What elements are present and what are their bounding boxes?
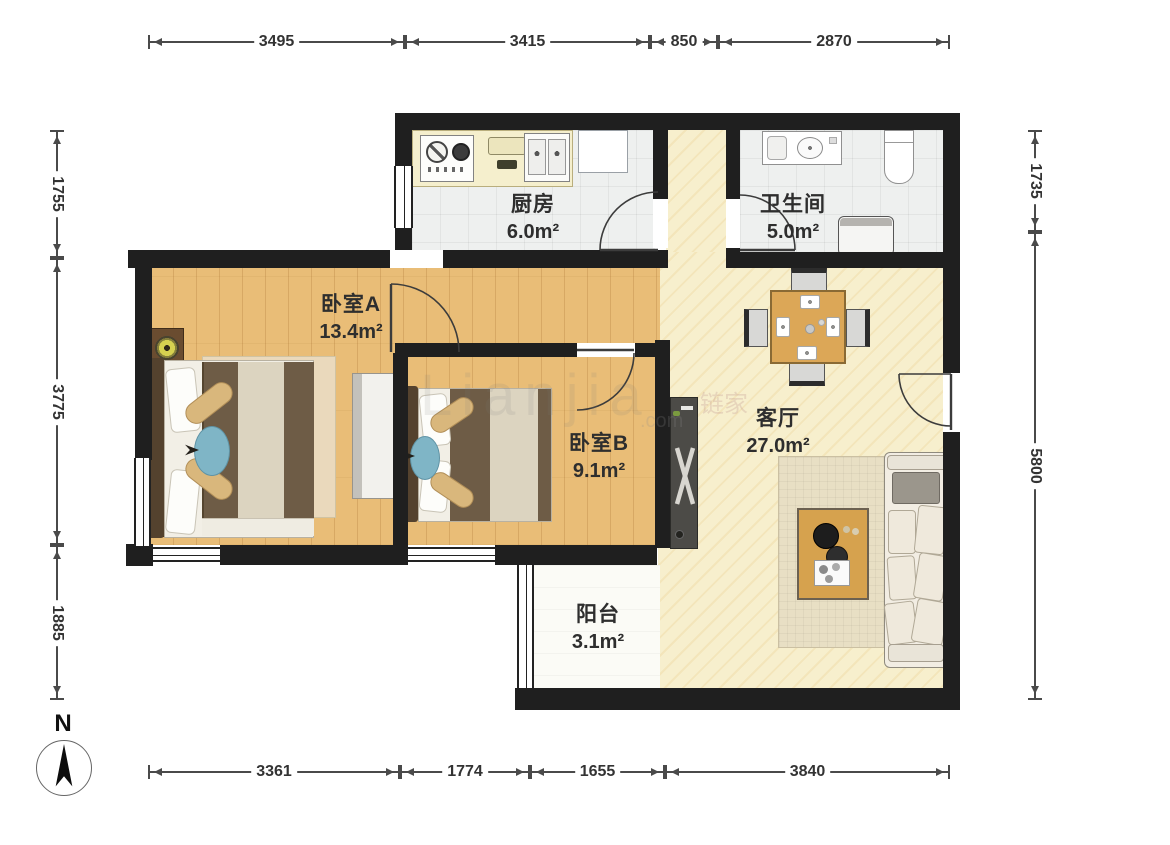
place-mat-bottom — [797, 346, 817, 360]
tv-cabinet — [670, 397, 698, 549]
living-room-area: 27.0m² — [746, 435, 809, 458]
bedroomB-label: 卧室B 9.1m² — [569, 427, 629, 483]
tray-cup3 — [825, 575, 833, 583]
dim-bottom-3: 1655 — [530, 764, 665, 780]
table-dish-small — [818, 319, 825, 326]
living-room-name: 客厅 — [746, 402, 809, 432]
balcony-label: 阳台 3.1m² — [572, 598, 624, 654]
vanity-accessory — [829, 137, 837, 144]
sofa-armrest-top — [887, 455, 949, 470]
toilet-tank-line — [885, 142, 913, 143]
dim-bottom-2: 1774 — [400, 764, 530, 780]
sink-basin-right — [548, 139, 566, 175]
wall-bedroomA-left — [135, 250, 152, 460]
wall-kitchen-right — [653, 113, 668, 199]
wall-bedroomA-top — [128, 250, 390, 268]
dim-top-3: 850 — [650, 34, 718, 50]
bedroomA-name: 卧室A — [319, 288, 382, 318]
wall-right-upper — [943, 113, 960, 373]
dim-left-3: 1885 — [49, 545, 65, 700]
north-label: N — [54, 710, 71, 738]
wall-bedrooms-bottom — [220, 545, 408, 565]
bedA-runner — [238, 362, 284, 520]
balcony-area: 3.1m² — [572, 631, 624, 654]
kitchen-appliance — [488, 137, 526, 155]
wall-kitchen-left-lower — [395, 226, 412, 252]
bedA-foot-sheet — [202, 518, 314, 536]
dim-top-1: 3495 — [148, 34, 405, 50]
floor-plan: Lianjia 链家 .com 厨房 6.0m² 卫生间 5.0m² 卧室A 1… — [0, 0, 1170, 845]
dim-bottom-4: 3840 — [665, 764, 950, 780]
wall-right-lower — [943, 432, 960, 710]
bathroom-area: 5.0m² — [760, 221, 826, 244]
place-mat-left — [776, 317, 790, 337]
living-room-label: 客厅 27.0m² — [746, 402, 809, 458]
wall-kitchen-left-upper — [395, 113, 412, 168]
wardrobe-edge — [353, 374, 362, 498]
wall-top — [395, 113, 960, 130]
washing-machine-panel — [840, 218, 892, 226]
decor-dot2 — [852, 528, 859, 535]
wall-bedroomB-living-divider — [655, 340, 670, 548]
bathroom-door-gap — [726, 199, 740, 248]
place-mat-top — [800, 295, 820, 309]
bedroomB-name: 卧室B — [569, 427, 629, 457]
sofa-seat-end — [888, 644, 944, 662]
tv-shelf-item — [681, 406, 693, 410]
kitchen-appliance-panel — [497, 160, 517, 169]
dining-chair-left — [744, 309, 768, 347]
bedB-cushion-blue — [410, 436, 440, 480]
kitchen-name: 厨房 — [507, 188, 559, 218]
bathroom-label: 卫生间 5.0m² — [760, 188, 826, 244]
decor-dot1 — [843, 526, 850, 533]
stove-burner2-icon — [452, 143, 470, 161]
bedroomA-door-gap — [390, 250, 443, 268]
entry-door-gap — [943, 373, 960, 432]
wall-kitchen-bottom — [443, 250, 668, 268]
wall-bedroomB-top-left — [395, 343, 577, 357]
wall-bottom — [515, 688, 960, 710]
bedroomB-door-gap — [577, 343, 635, 357]
tv-knob — [675, 530, 684, 539]
bedroomB-area: 9.1m² — [569, 460, 629, 483]
bedroomA-label: 卧室A 13.4m² — [319, 288, 382, 344]
bedA-cushion-blue — [194, 426, 230, 476]
kitchen-door-gap — [653, 199, 668, 248]
sofa-throw — [892, 472, 940, 504]
vanity-cabinet — [767, 136, 787, 160]
dim-bottom-1: 3361 — [148, 764, 400, 780]
tray-cup2 — [832, 563, 840, 571]
dining-chair-top — [791, 268, 827, 292]
bathroom-name: 卫生间 — [760, 188, 826, 218]
kitchen-area: 6.0m² — [507, 221, 559, 244]
wall-balcony-top — [495, 545, 657, 565]
dim-left-2: 3775 — [49, 258, 65, 545]
bedroomA-window-bottom — [153, 547, 220, 562]
vanity-sink-icon — [797, 137, 823, 159]
dim-top-4: 2870 — [718, 34, 950, 50]
hallway-floor — [666, 130, 728, 260]
bedB-runner — [490, 389, 538, 521]
refrigerator — [578, 130, 628, 173]
bedroomB-window-bottom — [408, 547, 495, 562]
wall-bathroom-left-stub — [726, 248, 740, 268]
bedroomA-area: 13.4m² — [319, 321, 382, 344]
balcony-window — [517, 565, 534, 688]
dining-chair-right — [846, 309, 870, 347]
tray-cup1 — [819, 565, 828, 574]
wall-corner-sw — [126, 544, 153, 566]
balcony-name: 阳台 — [572, 598, 624, 628]
toilet — [884, 130, 914, 184]
stove-knobs — [428, 167, 466, 172]
dim-left-1: 1755 — [49, 130, 65, 258]
wall-bathroom-bottom — [740, 252, 960, 268]
place-mat-right — [826, 317, 840, 337]
table-dish — [805, 324, 815, 334]
tv-plant-icon — [673, 411, 680, 416]
sofa-cushion1 — [888, 510, 916, 554]
wall-bedroomA-B-divider — [393, 353, 408, 545]
dim-right-1: 1735 — [1027, 130, 1043, 232]
wall-bathroom-left — [726, 113, 740, 199]
dim-top-2: 3415 — [405, 34, 650, 50]
kitchen-label: 厨房 6.0m² — [507, 188, 559, 244]
dim-right-2: 5800 — [1027, 232, 1043, 700]
kitchen-window — [394, 166, 413, 228]
stove-burner-icon — [426, 141, 448, 163]
sink-basin-left — [528, 139, 546, 175]
dining-chair-bottom — [789, 362, 825, 386]
bedroomA-window-left — [134, 458, 151, 546]
